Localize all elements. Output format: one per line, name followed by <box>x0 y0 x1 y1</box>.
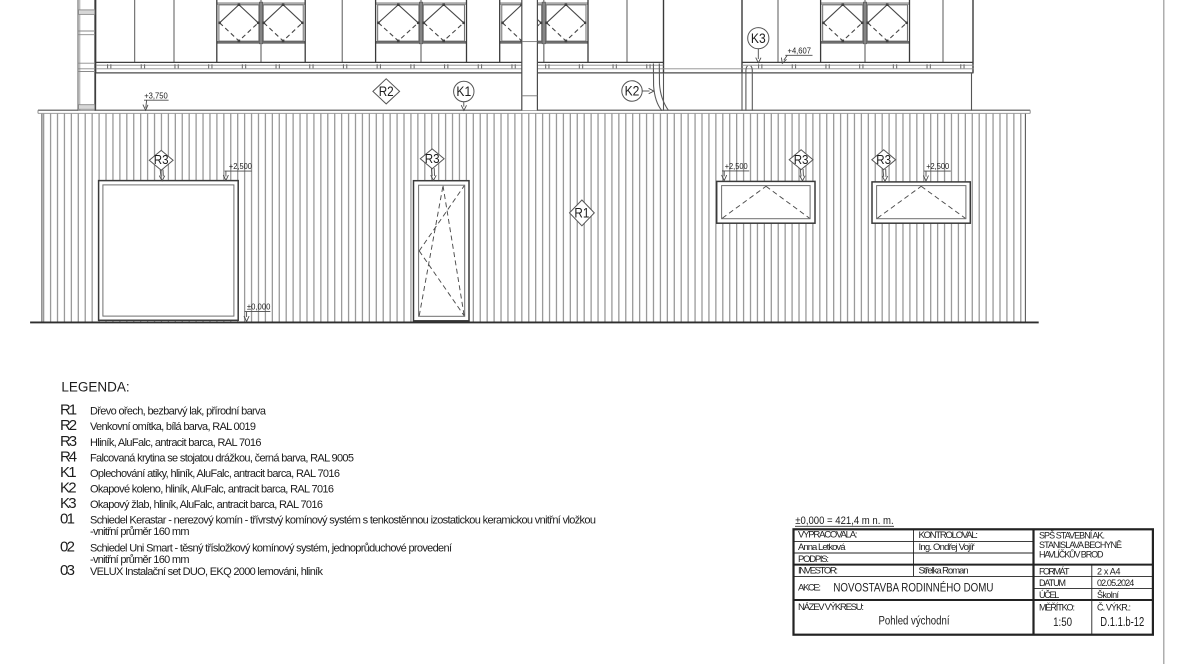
svg-text:Schiedel Kerastar - nerezový k: Schiedel Kerastar - nerezový komín - tří… <box>90 514 596 526</box>
svg-text:Školní: Školní <box>1097 590 1119 600</box>
svg-text:02.05.2024: 02.05.2024 <box>1097 578 1134 588</box>
svg-text:AKCE:: AKCE: <box>798 583 821 594</box>
svg-text:Venkovní omítka, bílá barva, R: Venkovní omítka, bílá barva, RAL 0019 <box>90 421 256 433</box>
svg-text:+4,607: +4,607 <box>788 47 812 56</box>
svg-text:Střelka Roman: Střelka Roman <box>919 566 969 577</box>
svg-text:DATUM: DATUM <box>1039 578 1066 588</box>
svg-text:R3: R3 <box>794 153 809 167</box>
svg-text:KONTROLOVAL:: KONTROLOVAL: <box>919 530 979 541</box>
svg-text:D.1.1.b-12: D.1.1.b-12 <box>1100 615 1144 629</box>
svg-text:ÚČEL: ÚČEL <box>1039 590 1059 600</box>
svg-text:+2,500: +2,500 <box>725 162 749 171</box>
svg-text:+2,500: +2,500 <box>229 162 253 171</box>
svg-text:+2,500: +2,500 <box>926 162 950 171</box>
svg-text:R2: R2 <box>60 417 77 434</box>
svg-text:K3: K3 <box>751 31 766 46</box>
svg-text:-vnitřní průměr 160 mm: -vnitřní průměr 160 mm <box>90 526 190 538</box>
svg-text:NÁZEV VÝKRESU:: NÁZEV VÝKRESU: <box>798 602 864 613</box>
svg-text:R4: R4 <box>60 448 77 465</box>
svg-text:Č. VÝKR.:: Č. VÝKR.: <box>1097 603 1131 613</box>
svg-text:INVESTOR:: INVESTOR: <box>798 566 838 577</box>
svg-text:Dřevo ořech, bezbarvý lak, pří: Dřevo ořech, bezbarvý lak, přírodní barv… <box>90 406 267 418</box>
svg-text:01: 01 <box>60 510 75 527</box>
svg-text:PODPIS:: PODPIS: <box>798 554 829 565</box>
svg-text:K1: K1 <box>60 464 77 481</box>
svg-text:STANISLAVA BECHYNĚ: STANISLAVA BECHYNĚ <box>1039 540 1122 550</box>
svg-text:R3: R3 <box>60 433 77 450</box>
svg-text:Falcovaná krytina se stojatou: Falcovaná krytina se stojatou drážkou, č… <box>90 452 354 464</box>
svg-text:SPŠ STAVEBNÍ AK.: SPŠ STAVEBNÍ AK. <box>1039 531 1105 541</box>
svg-text:R2: R2 <box>379 84 394 99</box>
svg-text:R1: R1 <box>574 206 589 221</box>
svg-text:R3: R3 <box>876 153 891 167</box>
svg-text:MĚŘÍTKO:: MĚŘÍTKO: <box>1039 603 1075 613</box>
svg-text:NOVOSTAVBA RODINNÉHO DOMU: NOVOSTAVBA RODINNÉHO DOMU <box>833 579 993 594</box>
svg-text:Okapový žlab, hliník, AluFalc,: Okapový žlab, hliník, AluFalc, antracit … <box>90 499 323 511</box>
svg-text:K2: K2 <box>60 480 77 497</box>
svg-text:02: 02 <box>60 538 75 555</box>
svg-text:2 x A4: 2 x A4 <box>1097 566 1121 576</box>
svg-text:HAVLÍČKŮV BROD: HAVLÍČKŮV BROD <box>1039 549 1104 560</box>
svg-text:±0,000: ±0,000 <box>247 303 271 312</box>
svg-text:+3,750: +3,750 <box>144 91 168 100</box>
svg-text:03: 03 <box>60 562 75 579</box>
svg-text:R3: R3 <box>425 152 440 166</box>
svg-text:Okapové koleno, hliník, AluFal: Okapové koleno, hliník, AluFalc, antraci… <box>90 484 334 496</box>
svg-text:R3: R3 <box>154 153 169 167</box>
svg-text:Anna Letková: Anna Letková <box>798 542 846 553</box>
svg-text:LEGENDA:: LEGENDA: <box>61 380 129 395</box>
svg-text:FORMÁT: FORMÁT <box>1039 566 1070 576</box>
svg-text:VYPRACOVALA:: VYPRACOVALA: <box>798 530 858 541</box>
svg-text:Hliník, AluFalc, antracit barc: Hliník, AluFalc, antracit barca, RAL 701… <box>90 437 262 449</box>
svg-text:VELUX Instalační set DUO, EKQ: VELUX Instalační set DUO, EKQ 2000 lemov… <box>90 566 324 578</box>
svg-text:K2: K2 <box>625 84 640 99</box>
svg-text:Oplechování atiky, hliník, Alu: Oplechování atiky, hliník, AluFalc, antr… <box>90 468 340 480</box>
svg-text:Schiedel Uni Smart - těsný tří: Schiedel Uni Smart - těsný třísložkový k… <box>90 542 452 554</box>
svg-text:R1: R1 <box>60 402 77 419</box>
svg-text:1:50: 1:50 <box>1053 615 1072 629</box>
svg-text:±0,000 = 421,4 m n. m.: ±0,000 = 421,4 m n. m. <box>795 515 893 527</box>
svg-text:Pohled východní: Pohled východní <box>879 616 951 628</box>
svg-text:Ing. Ondřej Vojíř: Ing. Ondřej Vojíř <box>919 542 976 553</box>
svg-text:K1: K1 <box>456 84 471 99</box>
svg-text:-vnitřní průměr 160 mm: -vnitřní průměr 160 mm <box>90 554 190 566</box>
